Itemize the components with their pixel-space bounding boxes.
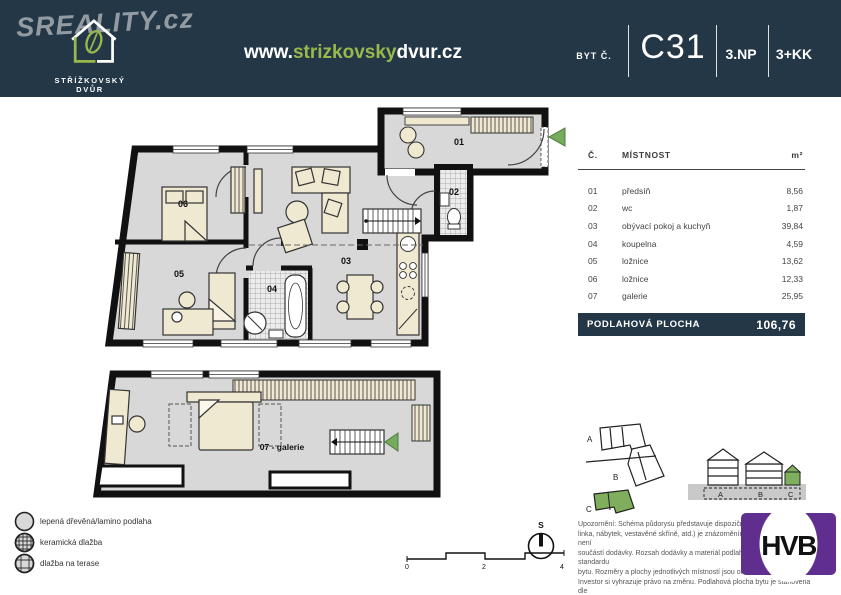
legend-label: keramická dlažba xyxy=(40,538,102,547)
scale-ticks: 0 2 4 xyxy=(405,564,564,570)
room-02-label: 02 xyxy=(449,187,459,197)
legend-label: dlažba na terase xyxy=(40,559,99,568)
legend-wood-floor-icon xyxy=(14,511,35,532)
header-divider xyxy=(768,25,769,77)
total-value: 106,76 xyxy=(756,318,796,332)
legend-item: keramická dlažba xyxy=(14,532,152,553)
room-04-label: 04 xyxy=(267,284,277,294)
project-url: www.strizkovskydvur.cz xyxy=(222,42,484,64)
row-num: 02 xyxy=(588,203,622,213)
elevation-letter-a: A xyxy=(718,490,723,499)
floor-legend: lepená dřevěná/lamino podlaha keramická … xyxy=(14,511,152,574)
gallery-staircase xyxy=(330,430,384,454)
row-area: 4,59 xyxy=(761,239,803,249)
project-logo: STŘÍŽKOVSKÝ DVŮR xyxy=(44,6,136,94)
layout-badge: 3+KK xyxy=(770,46,818,62)
col-area: m² xyxy=(761,150,803,160)
hvb-text: HVB xyxy=(761,530,816,561)
legend-terrace-tile-icon xyxy=(14,553,35,574)
floorplan-sheet: SREALITY.cz STŘÍŽKOVSKÝ DVŮR www.strizko… xyxy=(0,0,841,595)
url-www: www. xyxy=(244,42,293,63)
url-name: strizkovsky xyxy=(293,42,397,63)
row-num: 06 xyxy=(588,274,622,284)
table-row: 01 předsíň 8,56 xyxy=(578,182,805,200)
row-area: 25,95 xyxy=(761,291,803,301)
header-bar: SREALITY.cz STŘÍŽKOVSKÝ DVŮR www.strizko… xyxy=(0,0,841,97)
row-room: ložnice xyxy=(622,256,761,266)
gallery-void-left xyxy=(98,466,183,486)
table-row: 05 ložnice 13,62 xyxy=(578,252,805,270)
table-rows: 01 předsíň 8,56 02 wc 1,87 03 obývací po… xyxy=(578,182,805,305)
row-room: předsíň xyxy=(622,186,761,196)
legend-item: dlažba na terase xyxy=(14,553,152,574)
table-row: 06 ložnice 12,33 xyxy=(578,270,805,288)
row-room: koupelna xyxy=(622,239,761,249)
elevation-building-b xyxy=(746,464,782,485)
elevation-letter-c: C xyxy=(788,490,794,499)
gallery-wardrobe-right xyxy=(412,405,430,441)
table-header: Č. MÍSTNOST m² xyxy=(578,148,805,170)
table-row: 07 galerie 25,95 xyxy=(578,288,805,306)
table-row: 03 obývací pokoj a kuchyň 39,84 xyxy=(578,217,805,235)
room-06-label: 06 xyxy=(178,199,188,209)
gallery-floor-plan: 07 - galerie xyxy=(85,366,465,514)
entrance-arrow-icon xyxy=(549,128,565,146)
row-num: 01 xyxy=(588,186,622,196)
gallery-label: 07 - galerie xyxy=(260,442,305,452)
row-num: 05 xyxy=(588,256,622,266)
elevation-building-c xyxy=(785,472,800,485)
unit-number: C31 xyxy=(636,28,710,67)
row-num: 07 xyxy=(588,291,622,301)
row-area: 39,84 xyxy=(761,221,803,231)
site-letter-a: A xyxy=(587,435,593,444)
col-number: Č. xyxy=(588,150,622,160)
row-room: ložnice xyxy=(622,274,761,284)
elevation-letter-b: B xyxy=(758,490,763,499)
header-divider xyxy=(716,25,717,77)
elevation-diagram: A B C xyxy=(688,446,806,512)
row-num: 03 xyxy=(588,221,622,231)
url-tail: dvur.cz xyxy=(396,42,461,63)
row-room: wc xyxy=(622,203,761,213)
room-05-label: 05 xyxy=(174,269,184,279)
legend-label: lepená dřevěná/lamino podlaha xyxy=(40,517,152,526)
hvb-logo-icon: HVB xyxy=(741,509,836,591)
kitchen-units xyxy=(397,231,419,335)
scale-tick-0: 0 xyxy=(405,564,409,570)
gallery-void-middle xyxy=(270,472,350,488)
scale-bar: 0 2 4 xyxy=(404,546,568,570)
scale-tick-4: 4 xyxy=(560,564,564,570)
room-04-bath xyxy=(244,271,308,339)
row-room: galerie xyxy=(622,291,761,301)
room-table: Č. MÍSTNOST m² 01 předsíň 8,56 02 wc 1,8… xyxy=(578,148,805,336)
site-building-c xyxy=(594,490,634,513)
wall-stub xyxy=(357,239,368,250)
legend-item: lepená dřevěná/lamino podlaha xyxy=(14,511,152,532)
table-row: 04 koupelna 4,59 xyxy=(578,235,805,253)
total-label: PODLAHOVÁ PLOCHA xyxy=(587,319,756,330)
scale-tick-2: 2 xyxy=(482,564,486,570)
table-row: 02 wc 1,87 xyxy=(578,200,805,218)
floor-badge: 3.NP xyxy=(720,46,762,62)
row-room: obývací pokoj a kuchyň xyxy=(622,221,761,231)
main-floor-plan: 01 02 03 04 05 06 xyxy=(85,103,575,375)
col-room: MÍSTNOST xyxy=(622,150,761,160)
total-area-bar: PODLAHOVÁ PLOCHA 106,76 xyxy=(578,313,805,336)
room-03-label: 03 xyxy=(341,256,351,266)
row-area: 8,56 xyxy=(761,186,803,196)
row-num: 04 xyxy=(588,239,622,249)
compass-label: S xyxy=(538,520,544,530)
project-name: STŘÍŽKOVSKÝ DVŮR xyxy=(44,76,136,94)
site-plan: A B C xyxy=(586,420,678,516)
unit-label: BYT Č. xyxy=(570,51,618,61)
staircase xyxy=(363,209,421,233)
hvb-logo: HVB xyxy=(741,509,836,595)
elevation-building-a xyxy=(708,460,738,485)
row-area: 12,33 xyxy=(761,274,803,284)
house-leaf-logo-icon xyxy=(55,6,125,70)
site-letter-c: C xyxy=(586,505,592,514)
row-area: 13,62 xyxy=(761,256,803,266)
room-01-label: 01 xyxy=(454,137,464,147)
site-letter-b: B xyxy=(613,473,618,482)
legend-ceramic-tile-icon xyxy=(14,532,35,553)
row-area: 1,87 xyxy=(761,203,803,213)
header-divider xyxy=(628,25,629,77)
